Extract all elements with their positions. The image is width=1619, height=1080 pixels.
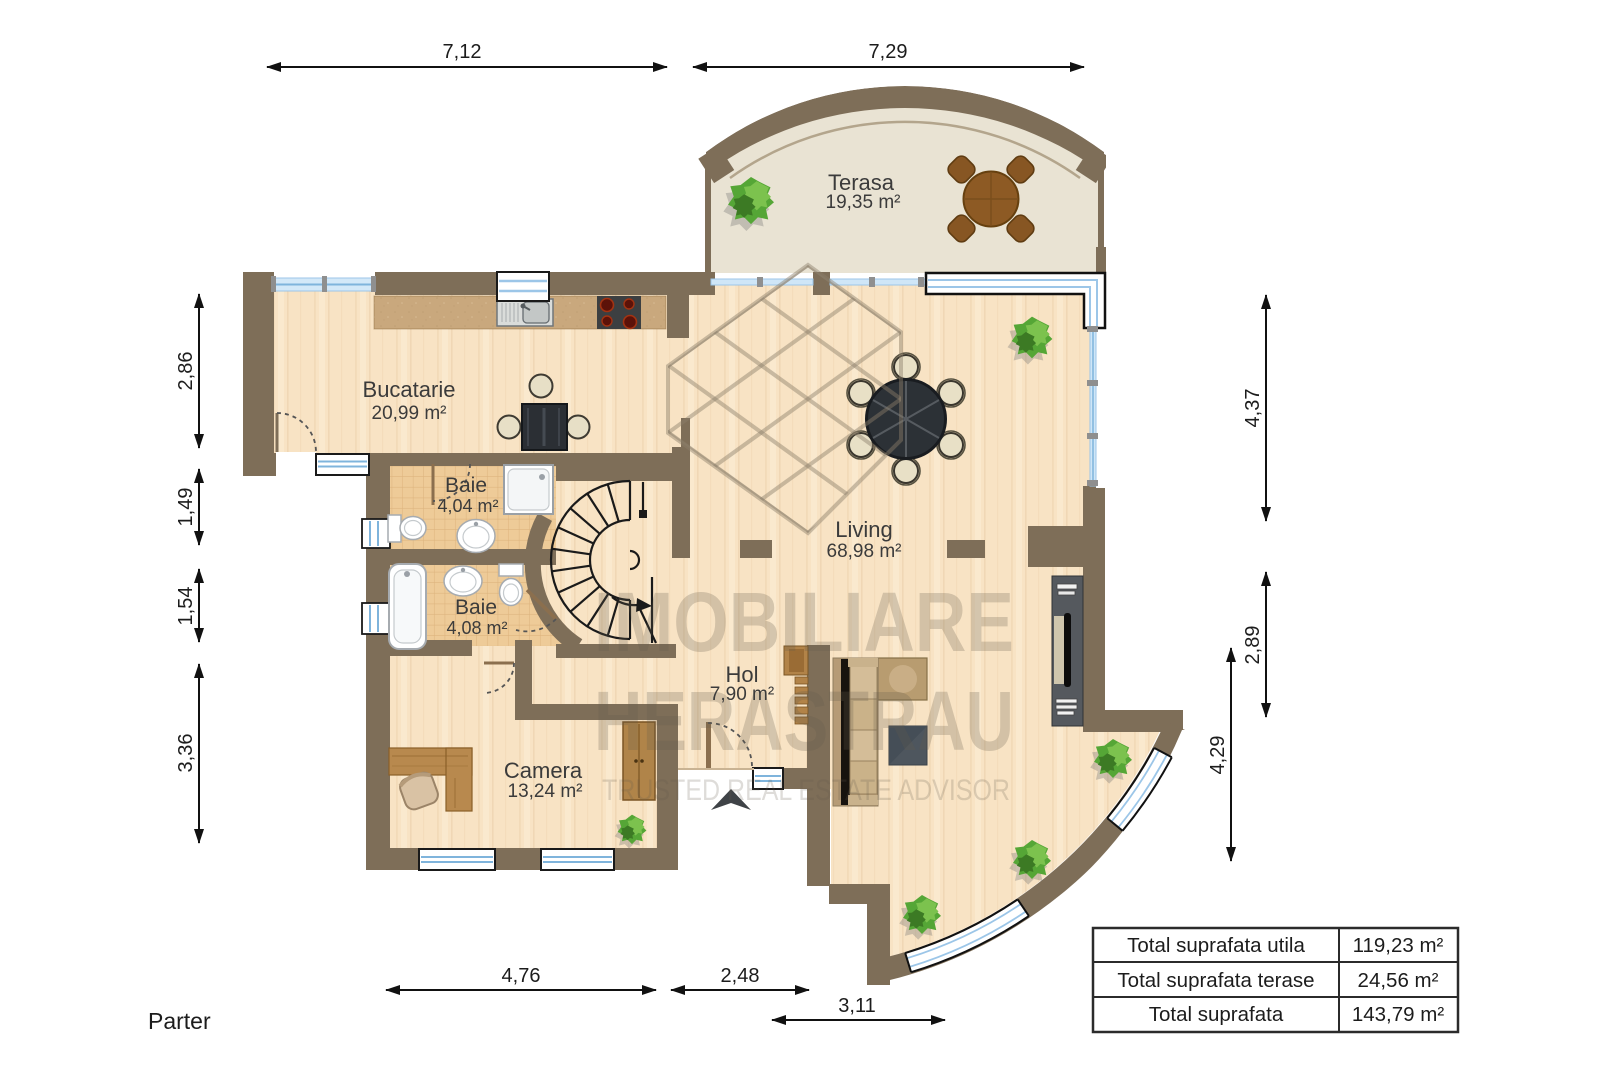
svg-text:Camera: Camera [504, 758, 583, 783]
svg-text:4,29: 4,29 [1207, 736, 1229, 775]
svg-text:68,98 m²: 68,98 m² [827, 541, 902, 562]
svg-text:4,04 m²: 4,04 m² [437, 496, 498, 516]
svg-text:4,76: 4,76 [502, 965, 541, 987]
svg-text:HERASTRAU: HERASTRAU [594, 674, 1014, 768]
svg-text:4,37: 4,37 [1242, 389, 1264, 428]
svg-text:2,89: 2,89 [1242, 626, 1264, 665]
svg-text:Baie: Baie [455, 596, 497, 619]
svg-text:Total suprafata utila: Total suprafata utila [1127, 934, 1305, 957]
svg-text:7,90 m²: 7,90 m² [710, 684, 774, 705]
svg-text:Bucatarie: Bucatarie [363, 377, 456, 402]
svg-text:1,49: 1,49 [175, 488, 197, 527]
svg-text:13,24 m²: 13,24 m² [508, 781, 583, 802]
svg-text:143,79 m²: 143,79 m² [1352, 1003, 1444, 1026]
svg-text:Living: Living [835, 517, 892, 542]
svg-text:Baie: Baie [445, 474, 487, 497]
svg-text:IMOBILIARE: IMOBILIARE [594, 575, 1014, 669]
svg-text:119,23 m²: 119,23 m² [1353, 934, 1444, 957]
svg-text:19,35 m²: 19,35 m² [826, 192, 901, 213]
svg-text:1,54: 1,54 [175, 587, 197, 626]
svg-text:Total suprafata terase: Total suprafata terase [1117, 969, 1314, 992]
svg-text:20,99 m²: 20,99 m² [372, 403, 447, 424]
svg-text:Total suprafata: Total suprafata [1149, 1003, 1284, 1026]
svg-text:7,29: 7,29 [869, 41, 908, 63]
svg-text:2,48: 2,48 [721, 965, 760, 987]
svg-text:7,12: 7,12 [443, 41, 482, 63]
svg-text:4,08 m²: 4,08 m² [446, 618, 507, 638]
svg-text:3,11: 3,11 [838, 995, 875, 1017]
svg-text:Parter: Parter [148, 1008, 211, 1034]
svg-text:TRUSTED REAL ESTATE ADVISOR: TRUSTED REAL ESTATE ADVISOR [602, 774, 1010, 807]
svg-text:2,86: 2,86 [175, 352, 197, 391]
svg-text:3,36: 3,36 [175, 734, 197, 773]
svg-text:24,56 m²: 24,56 m² [1358, 969, 1439, 992]
